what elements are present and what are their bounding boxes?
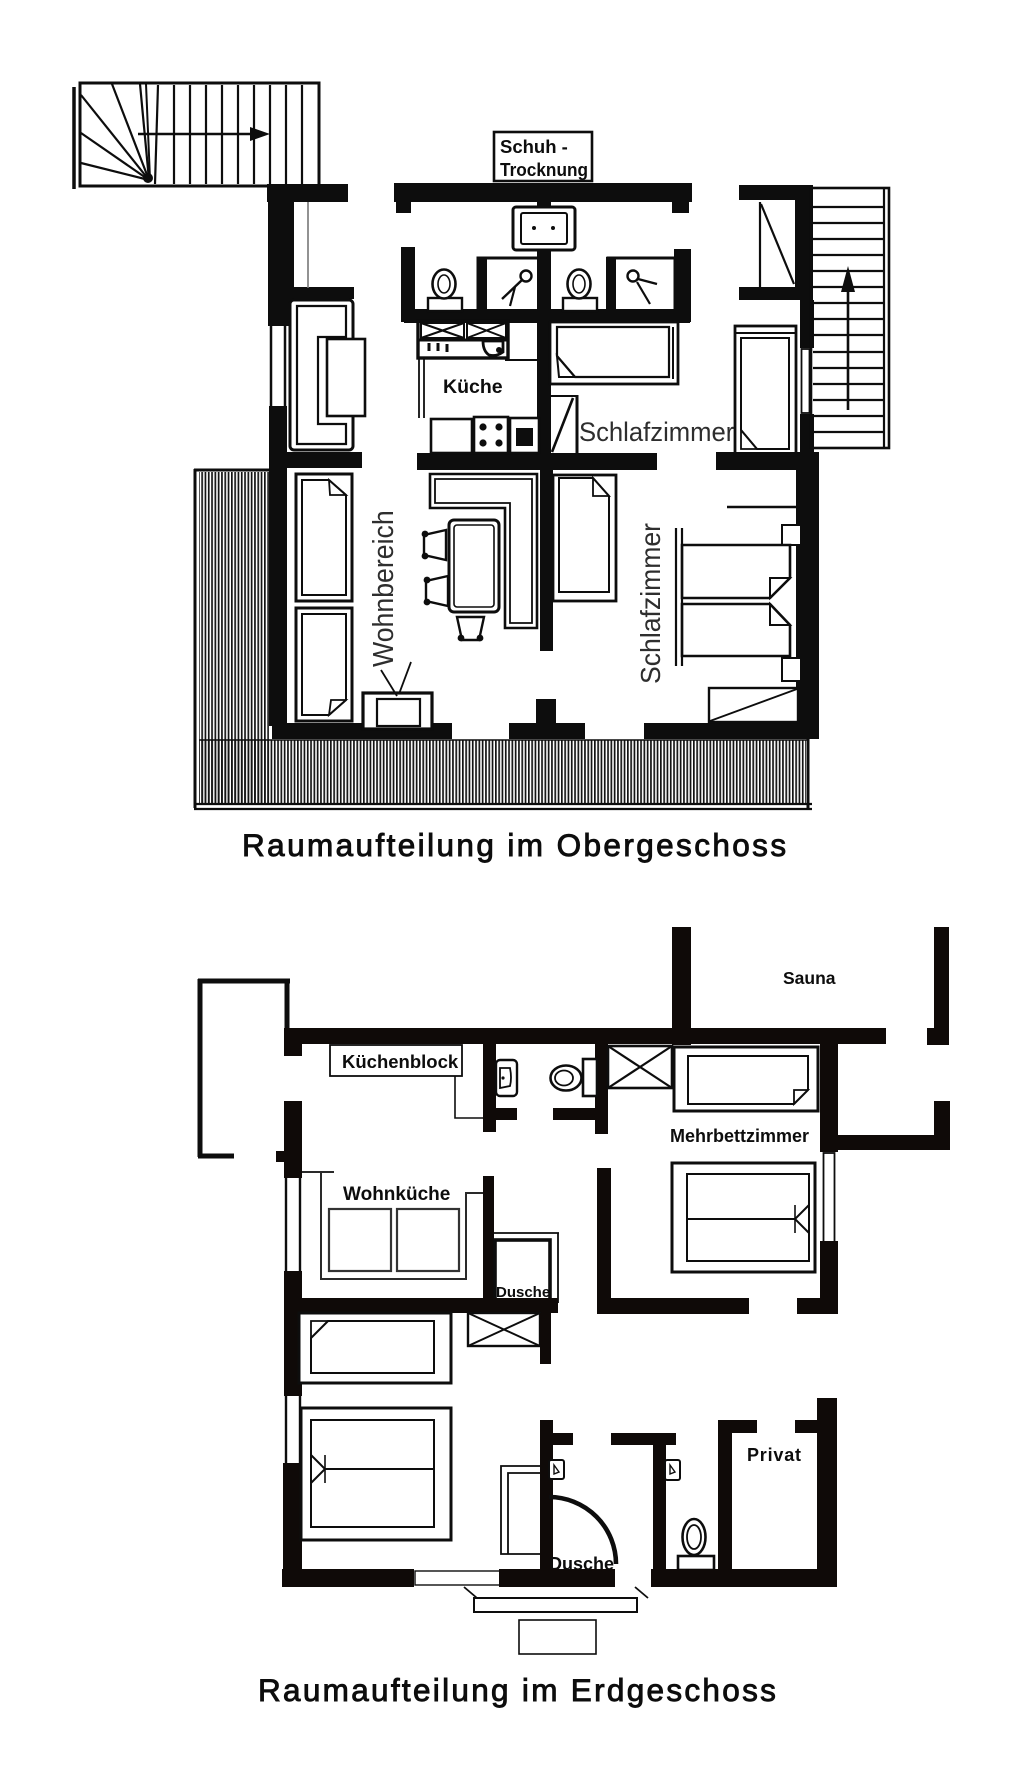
- svg-text:Sauna: Sauna: [783, 968, 836, 988]
- svg-text:Küchenblock: Küchenblock: [342, 1051, 459, 1072]
- svg-text:Raumaufteilung im Erdgeschoss: Raumaufteilung im Erdgeschoss: [258, 1672, 778, 1708]
- svg-text:Wohnbereich: Wohnbereich: [367, 510, 399, 667]
- svg-text:Trocknung: Trocknung: [500, 159, 588, 180]
- svg-text:Schlafzimmer: Schlafzimmer: [579, 416, 735, 447]
- svg-text:Küche: Küche: [443, 376, 503, 398]
- svg-text:Schuh -: Schuh -: [500, 136, 568, 157]
- svg-text:Schlafzimmer: Schlafzimmer: [634, 523, 666, 684]
- svg-text:Mehrbettzimmer: Mehrbettzimmer: [670, 1126, 809, 1146]
- svg-text:Wohnküche: Wohnküche: [343, 1184, 450, 1205]
- svg-text:Raumaufteilung im Obergeschoss: Raumaufteilung im Obergeschoss: [242, 827, 788, 863]
- svg-text:Privat: Privat: [747, 1445, 802, 1465]
